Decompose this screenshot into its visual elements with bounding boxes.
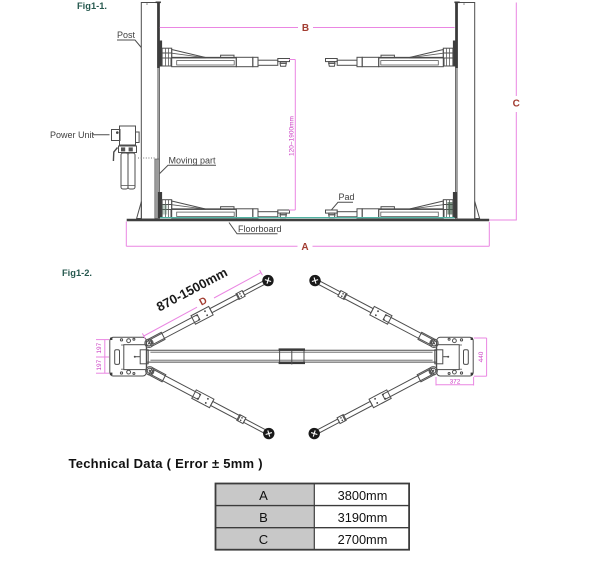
svg-text:Technical Data ( Error ± 5mm: Technical Data ( Error ± 5mm ) <box>69 456 263 471</box>
svg-text:Floorboard: Floorboard <box>238 224 282 234</box>
svg-text:Power Unit: Power Unit <box>50 130 95 140</box>
svg-text:A: A <box>301 242 308 253</box>
svg-text:197: 197 <box>96 359 103 370</box>
svg-text:Pad: Pad <box>339 192 355 202</box>
svg-text:B: B <box>302 23 309 34</box>
svg-text:C: C <box>513 99 520 110</box>
svg-text:120~1900mm: 120~1900mm <box>289 116 296 156</box>
svg-text:Moving part: Moving part <box>169 156 217 166</box>
svg-text:3190mm: 3190mm <box>338 510 388 525</box>
svg-text:3800mm: 3800mm <box>338 488 388 503</box>
svg-text:C: C <box>259 532 268 547</box>
svg-text:A: A <box>259 488 268 503</box>
svg-text:Fig1-1.: Fig1-1. <box>77 1 107 11</box>
svg-text:197: 197 <box>96 342 103 353</box>
svg-text:Post: Post <box>117 30 136 40</box>
svg-text:B: B <box>259 510 268 525</box>
svg-text:440: 440 <box>478 351 485 362</box>
svg-text:372: 372 <box>450 379 461 386</box>
svg-text:2700mm: 2700mm <box>338 532 388 547</box>
svg-text:Fig1-2.: Fig1-2. <box>62 268 92 278</box>
